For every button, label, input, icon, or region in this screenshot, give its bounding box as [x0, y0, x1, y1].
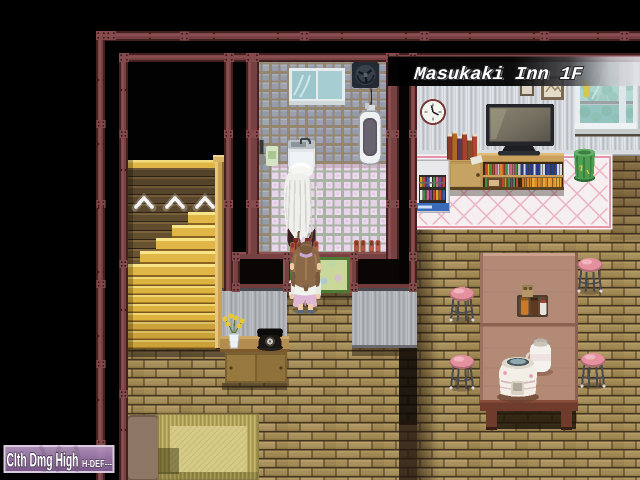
svg-text:Masukaki Inn 1F: Masukaki Inn 1F [413, 65, 585, 85]
svg-text:H-DEF---: H-DEF--- [82, 458, 112, 470]
svg-text:Clth Dmg High: Clth Dmg High [7, 450, 79, 472]
